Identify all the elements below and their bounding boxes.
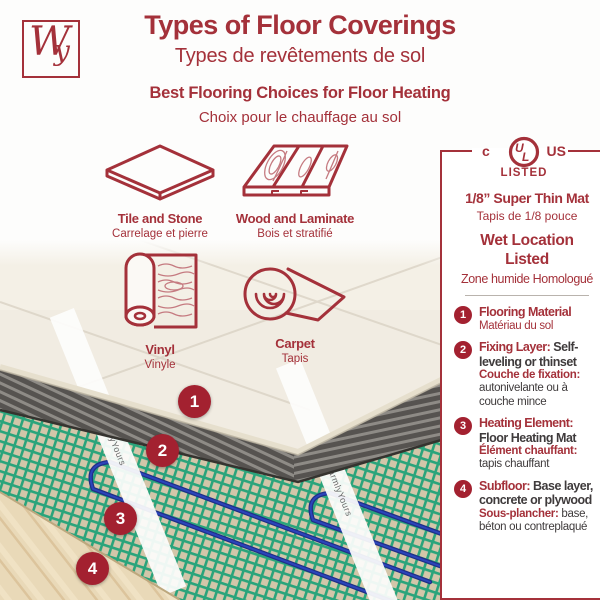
product-name-fr: Tapis de 1/8 pouce (454, 209, 600, 223)
wet-location-fr: Zone humide Homologué (454, 272, 600, 286)
layer-marker-3: 3 (104, 502, 137, 535)
warmlyyours-logo: W y (22, 20, 80, 78)
category-label-fr: Tapis (282, 352, 309, 367)
ul-c: c (482, 143, 490, 159)
wet-location-line1: Wet Location (454, 232, 600, 251)
ul-us: US (547, 143, 566, 159)
category-tile-and-stone: Tile and Stone Carrelage et pierre (85, 143, 235, 242)
category-wood-and-laminate: Wood and Laminate Bois et stratifié (220, 143, 370, 242)
legend-en-red: Fixing Layer: (479, 340, 550, 354)
wet-location-line2: Listed (454, 251, 600, 270)
section-heading: Best Flooring Choices for Floor Heating (0, 84, 600, 103)
legend-item-1: 1 Flooring Material Matériau du sol (454, 305, 600, 333)
tile-icon (104, 143, 216, 203)
legend-en-red: Heating Element: (479, 416, 573, 430)
category-label: Carpet (275, 336, 314, 352)
layer-marker-1: 1 (178, 385, 211, 418)
legend-en-red: Subfloor: (479, 479, 530, 493)
legend-badge-4: 4 (454, 480, 472, 498)
infographic: W y Types of Floor Coverings Types de re… (0, 0, 600, 600)
product-name: 1/8” Super Thin Mat (454, 190, 600, 206)
ul-listed: LISTED (482, 167, 566, 179)
category-label: Wood and Laminate (236, 211, 354, 227)
legend-fr-dark: tapis chauffant (479, 458, 549, 470)
legend-badge-1: 1 (454, 306, 472, 324)
layer-marker-2: 2 (146, 434, 179, 467)
legend-fr-red: Couche de fixation: (479, 369, 580, 381)
legend-item-2: 2 Fixing Layer: Self-leveling or thinset… (454, 340, 600, 409)
category-label: Vinyl (145, 342, 174, 358)
category-carpet: Carpet Tapis (220, 256, 370, 367)
legend-fr-red: Matériau du sol (479, 320, 553, 332)
legend-en-dark: Floor Heating Mat (479, 431, 576, 445)
cul-us-listed-mark: c U L US LISTED (482, 136, 566, 184)
page-subtitle-fr: Types de revêtements de sol (0, 45, 600, 68)
legend-badge-2: 2 (454, 341, 472, 359)
svg-text:L: L (522, 150, 529, 164)
category-label-fr: Bois et stratifié (257, 227, 332, 242)
carpet-icon (242, 256, 348, 328)
category-label-fr: Vinyle (144, 358, 175, 373)
wet-location-listed: Wet Location Listed (454, 232, 600, 269)
section-heading-fr: Choix pour le chauffage au sol (0, 109, 600, 126)
legend-badge-3: 3 (454, 417, 472, 435)
page-title: Types of Floor Coverings (0, 10, 600, 41)
category-label: Tile and Stone (118, 211, 202, 227)
category-label-fr: Carrelage et pierre (112, 227, 208, 242)
legend-en-red: Flooring Material (479, 305, 571, 319)
product-info-panel: c U L US LISTED 1/8” Super Thin Mat Tapi… (440, 150, 600, 600)
legend-fr-red: Élément chauffant: (479, 445, 577, 457)
legend-item-3: 3 Heating Element: Floor Heating Mat Élé… (454, 416, 600, 472)
layer-marker-4: 4 (76, 552, 109, 585)
legend-fr-red: Sous-plancher: (479, 508, 559, 520)
ul-circle-icon: U L (508, 136, 540, 168)
legend-item-4: 4 Subfloor: Base layer, concrete or plyw… (454, 479, 600, 535)
legend-fr-dark: autonivelante ou à couche mince (479, 382, 568, 407)
category-vinyl: Vinyl Vinyle (85, 250, 235, 373)
wood-icon (239, 143, 351, 203)
vinyl-icon (118, 250, 202, 334)
logo-letter-y: y (54, 34, 70, 67)
panel-divider (465, 295, 589, 296)
